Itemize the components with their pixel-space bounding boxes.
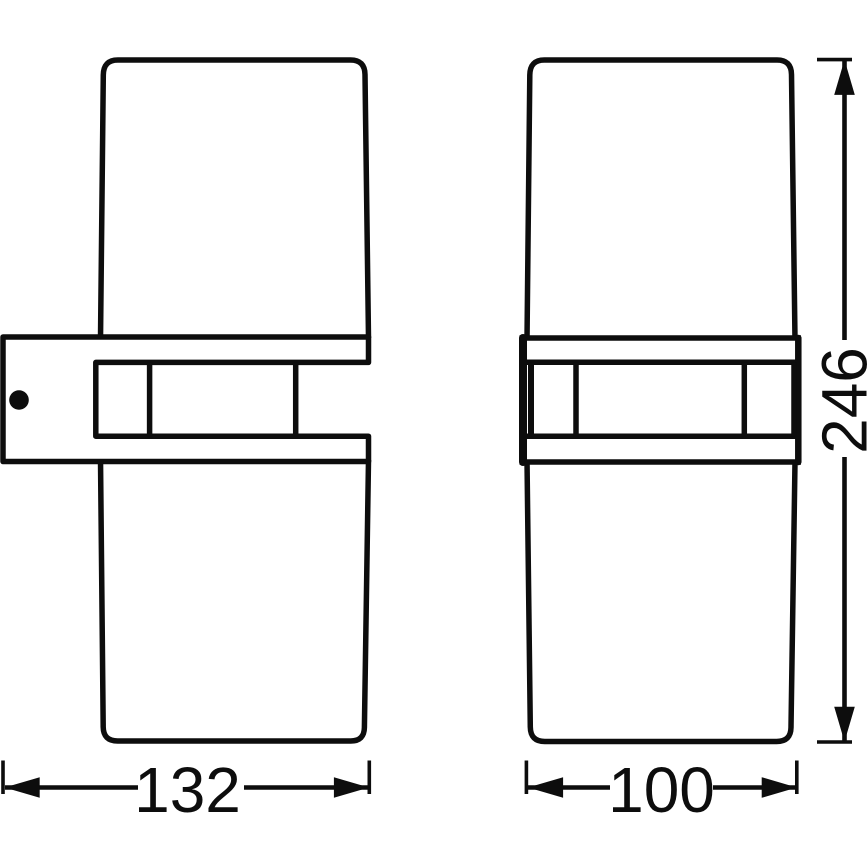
svg-text:132: 132: [134, 754, 241, 826]
svg-text:246: 246: [809, 347, 868, 454]
svg-text:100: 100: [608, 754, 715, 826]
